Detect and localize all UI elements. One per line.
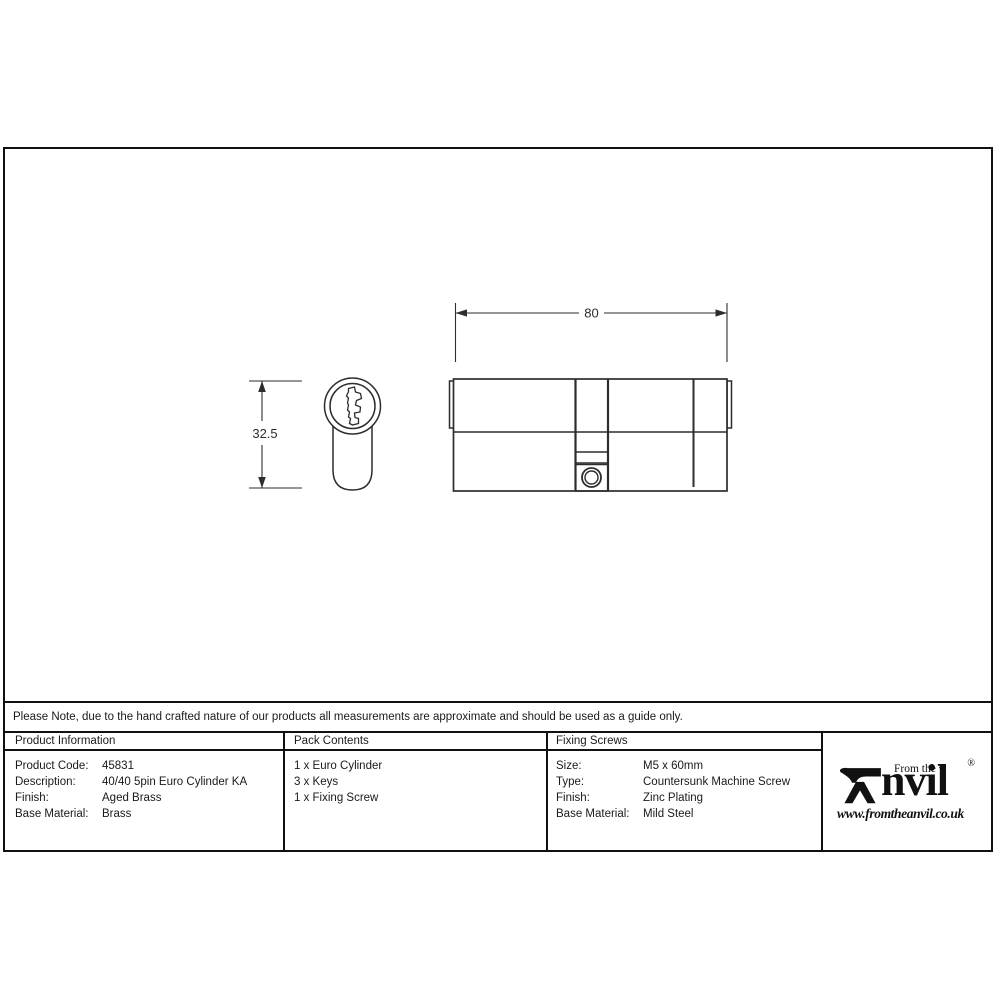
cylinder-side-view [450,379,732,491]
spec-label: Base Material: [15,806,102,822]
cylinder-front-view [325,378,381,490]
fixing-screws-body: Size: M5 x 60mm Type: Countersunk Machin… [548,751,821,822]
pack-item: 1 x Euro Cylinder [294,758,546,774]
spec-label: Size: [556,758,643,774]
spec-value: Brass [102,806,283,822]
pack-item: 3 x Keys [294,774,546,790]
spec-label: Finish: [556,790,643,806]
pack-contents-body: 1 x Euro Cylinder 3 x Keys 1 x Fixing Sc… [285,751,546,806]
spec-sheet-page: 32.5 [0,0,1000,1000]
spec-value: 45831 [102,758,283,774]
note-text: Please Note, due to the hand crafted nat… [13,711,683,723]
product-information-body: Product Code: 45831 Description: 40/40 5… [5,751,283,822]
brand-website: www.fromtheanvil.co.uk [837,806,977,822]
from-the-anvil-logo: nvil From the ♦ ® www.fromtheanvil.co.uk [837,759,977,825]
spec-value: Mild Steel [643,806,821,822]
registered-trademark-symbol: ® [967,758,975,769]
pack-contents-header: Pack Contents [285,733,546,751]
pack-item: 1 x Fixing Screw [294,790,546,806]
product-information-column: Product Information Product Code: 45831 … [5,733,285,850]
spec-sheet: 32.5 [3,147,993,852]
width-dimension-label: 80 [584,306,598,321]
measurement-note: Please Note, due to the hand crafted nat… [5,701,991,733]
brand-column: nvil From the ♦ ® www.fromtheanvil.co.uk [823,733,991,850]
spec-value: Countersunk Machine Screw [643,774,821,790]
brand-tagline: From the ♦ [894,763,943,775]
anvil-icon [837,765,883,805]
spec-value: Aged Brass [102,790,283,806]
spec-value: M5 x 60mm [643,758,821,774]
diamond-icon: ♦ [939,763,943,772]
product-information-header: Product Information [5,733,283,751]
spec-value: Zinc Plating [643,790,821,806]
spec-label: Type: [556,774,643,790]
spec-label: Product Code: [15,758,102,774]
cylinder-drawing-svg: 32.5 [5,149,991,701]
fixing-screws-column: Fixing Screws Size: M5 x 60mm Type: Coun… [548,733,823,850]
spec-label: Finish: [15,790,102,806]
spec-label: Description: [15,774,102,790]
technical-drawing: 32.5 [5,149,991,701]
pack-contents-column: Pack Contents 1 x Euro Cylinder 3 x Keys… [285,733,548,850]
spec-value: 40/40 5pin Euro Cylinder KA [102,774,283,790]
spec-table: Product Information Product Code: 45831 … [5,733,991,850]
spec-label: Base Material: [556,806,643,822]
fixing-screws-header: Fixing Screws [548,733,821,751]
height-dimension-label: 32.5 [252,426,277,441]
